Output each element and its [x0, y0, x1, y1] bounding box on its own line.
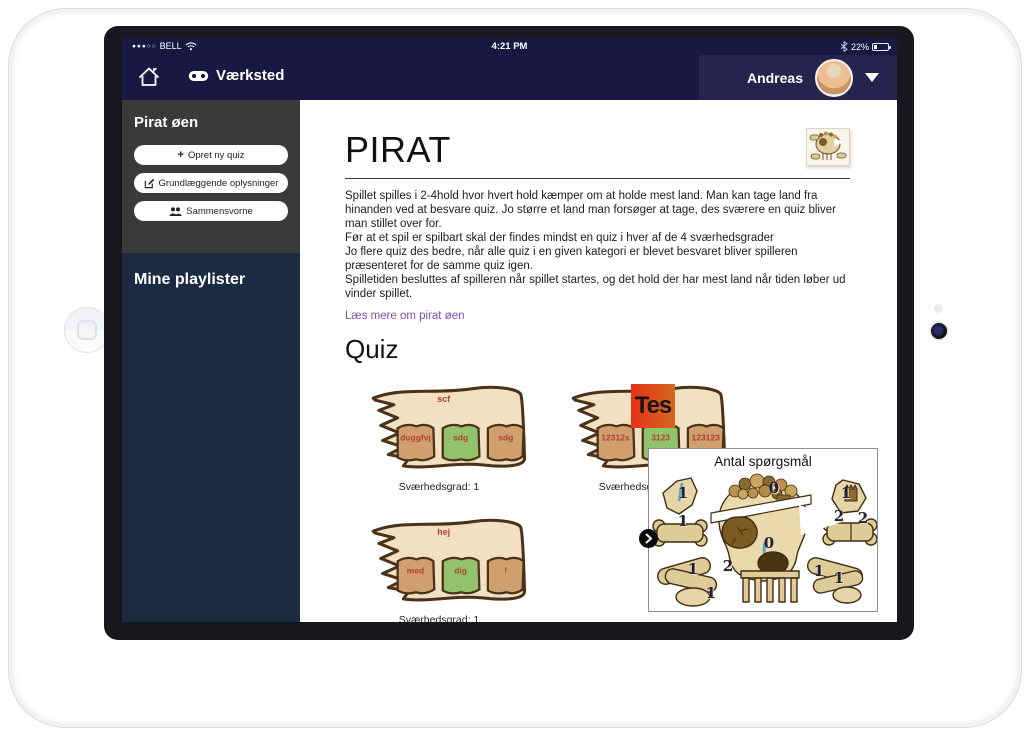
battery-percent: 22% [851, 42, 869, 52]
book-label: med [407, 565, 424, 575]
book-label: 3123 [651, 432, 670, 442]
parchment-illustration: hej med dig ! [345, 501, 533, 614]
region-question-count: 1 [706, 584, 716, 602]
basic-info-button[interactable]: Grundlæggende oplysninger [134, 173, 288, 193]
conspirators-label: Sammensvorne [186, 206, 253, 217]
brand[interactable]: Værksted [188, 67, 284, 84]
user-menu[interactable]: Andreas [699, 55, 897, 100]
bluetooth-icon [840, 41, 848, 52]
book-label: duggfvj [400, 432, 431, 442]
island-title: Pirat øen [134, 114, 288, 131]
description-paragraph: Spilletiden besluttes af spilleren når s… [345, 273, 850, 301]
book-label: 12312s [601, 432, 630, 442]
region-question-count: 1 [834, 569, 844, 587]
description-paragraph: Før at et spil er spilbart skal der find… [345, 231, 850, 245]
quiz-logo-image: Tes [631, 384, 675, 428]
ipad-sensor-dot [934, 304, 943, 313]
region-question-count: 2 [858, 509, 868, 527]
user-name: Andreas [747, 70, 803, 86]
read-more-link[interactable]: Læs mere om pirat øen [345, 310, 465, 322]
book-label: sdg [498, 432, 513, 442]
quiz-heading: Quiz [345, 334, 850, 364]
conspirators-button[interactable]: Sammensvorne [134, 201, 288, 221]
divider [345, 178, 850, 179]
chevron-right-icon[interactable] [639, 529, 658, 548]
plus-icon: + [178, 150, 184, 161]
top-navbar: Værksted Andreas [122, 55, 897, 100]
region-question-count: 1 [841, 484, 851, 502]
brand-label: Værksted [216, 67, 284, 84]
create-quiz-label: Opret ny quiz [188, 150, 245, 161]
region-question-count: 0 [769, 479, 779, 497]
book-label: sdg [453, 432, 468, 442]
status-right: 22% [840, 41, 889, 52]
parchment-illustration: scf duggfvj sdg sdg [345, 368, 533, 481]
book-label: dig [454, 565, 467, 575]
quiz-title: scf [437, 394, 450, 404]
sidebar: Pirat øen + Opret ny quiz Grundlæggende … [122, 100, 300, 622]
region-question-count: 1 [678, 512, 688, 530]
region-question-count: 1 [688, 560, 698, 578]
game-description: Spillet spilles i 2-4hold hvor hvert hol… [345, 189, 850, 301]
playlists-title[interactable]: Mine playlister [134, 271, 288, 289]
sidebar-island-section: Pirat øen + Opret ny quiz Grundlæggende … [122, 100, 300, 253]
quiz-title: hej [437, 527, 450, 537]
page-title: PIRAT [345, 130, 850, 170]
status-bar: ●●●○○ BELL 4:21 PM 22% [122, 38, 897, 55]
island-map-thumbnail [806, 128, 850, 166]
description-paragraph: Jo flere quiz des bedre, når alle quiz i… [345, 245, 850, 273]
clock: 4:21 PM [122, 41, 897, 52]
home-icon[interactable] [138, 66, 160, 88]
region-question-count: 1 [814, 562, 824, 580]
chevron-down-icon[interactable] [865, 73, 879, 82]
home-button-square [77, 320, 97, 340]
quiz-books: med dig ! [398, 558, 524, 593]
question-count-panel: Antal spørgsmål [648, 448, 878, 612]
difficulty-caption: Sværhedsgrad: 1 [345, 481, 533, 493]
pencil-square-icon [144, 178, 155, 189]
users-icon [169, 207, 182, 216]
gamepad-icon [188, 70, 209, 82]
question-count-title: Antal spørgsmål [649, 454, 877, 469]
region-question-count: 2 [834, 507, 844, 525]
create-quiz-button[interactable]: + Opret ny quiz [134, 145, 288, 165]
book-label: ! [504, 565, 507, 575]
sidebar-playlists-section: Mine playlister [122, 253, 300, 289]
difficulty-caption: Sværhedsgrad: 1 [345, 614, 533, 622]
description-paragraph: Spillet spilles i 2-4hold hvor hvert hol… [345, 189, 850, 231]
avatar[interactable] [815, 59, 853, 97]
quiz-card[interactable]: scf duggfvj sdg sdg Sværhedsgrad: 1 [345, 368, 533, 493]
region-question-count: 0 [764, 534, 774, 552]
quiz-card[interactable]: hej med dig ! Sværhedsgrad: 1 [345, 501, 533, 622]
region-question-count: 2 [723, 557, 733, 575]
basic-info-label: Grundlæggende oplysninger [159, 178, 279, 189]
region-question-count: 1 [678, 484, 688, 502]
page: ●●●○○ BELL 4:21 PM 22% [0, 0, 1030, 736]
app-screen: ●●●○○ BELL 4:21 PM 22% [122, 38, 897, 622]
battery-icon [872, 43, 889, 51]
ipad-camera [931, 323, 947, 339]
book-label: 123123 [692, 432, 721, 442]
quiz-books: duggfvj sdg sdg [398, 425, 524, 460]
